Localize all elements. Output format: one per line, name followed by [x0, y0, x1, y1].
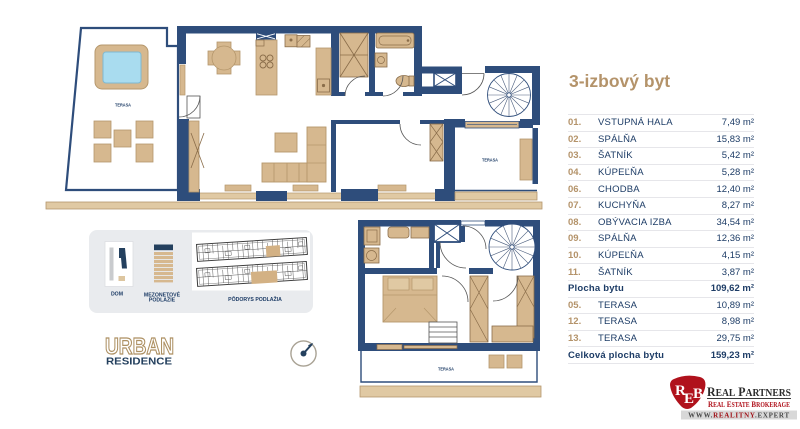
svg-text:RESIDENCE: RESIDENCE	[106, 357, 172, 368]
svg-text:PÔDORYS PODLAŽIA: PÔDORYS PODLAŽIA	[228, 295, 282, 303]
svg-text:REAL PARTNERS: REAL PARTNERS	[707, 384, 791, 399]
svg-text:TERASA: TERASA	[438, 367, 455, 372]
svg-text:DOM: DOM	[111, 292, 123, 298]
svg-text:REAL ESTATE BROKERAGE: REAL ESTATE BROKERAGE	[708, 399, 790, 409]
svg-text:WWW.REALITNY.EXPERT: WWW.REALITNY.EXPERT	[688, 412, 790, 420]
svg-text:URBAN: URBAN	[105, 333, 174, 359]
svg-text:TERASA: TERASA	[482, 158, 499, 163]
svg-text:B: B	[693, 386, 703, 402]
svg-text:PODLAŽIE: PODLAŽIE	[149, 296, 176, 304]
svg-text:TERASA: TERASA	[115, 103, 132, 108]
